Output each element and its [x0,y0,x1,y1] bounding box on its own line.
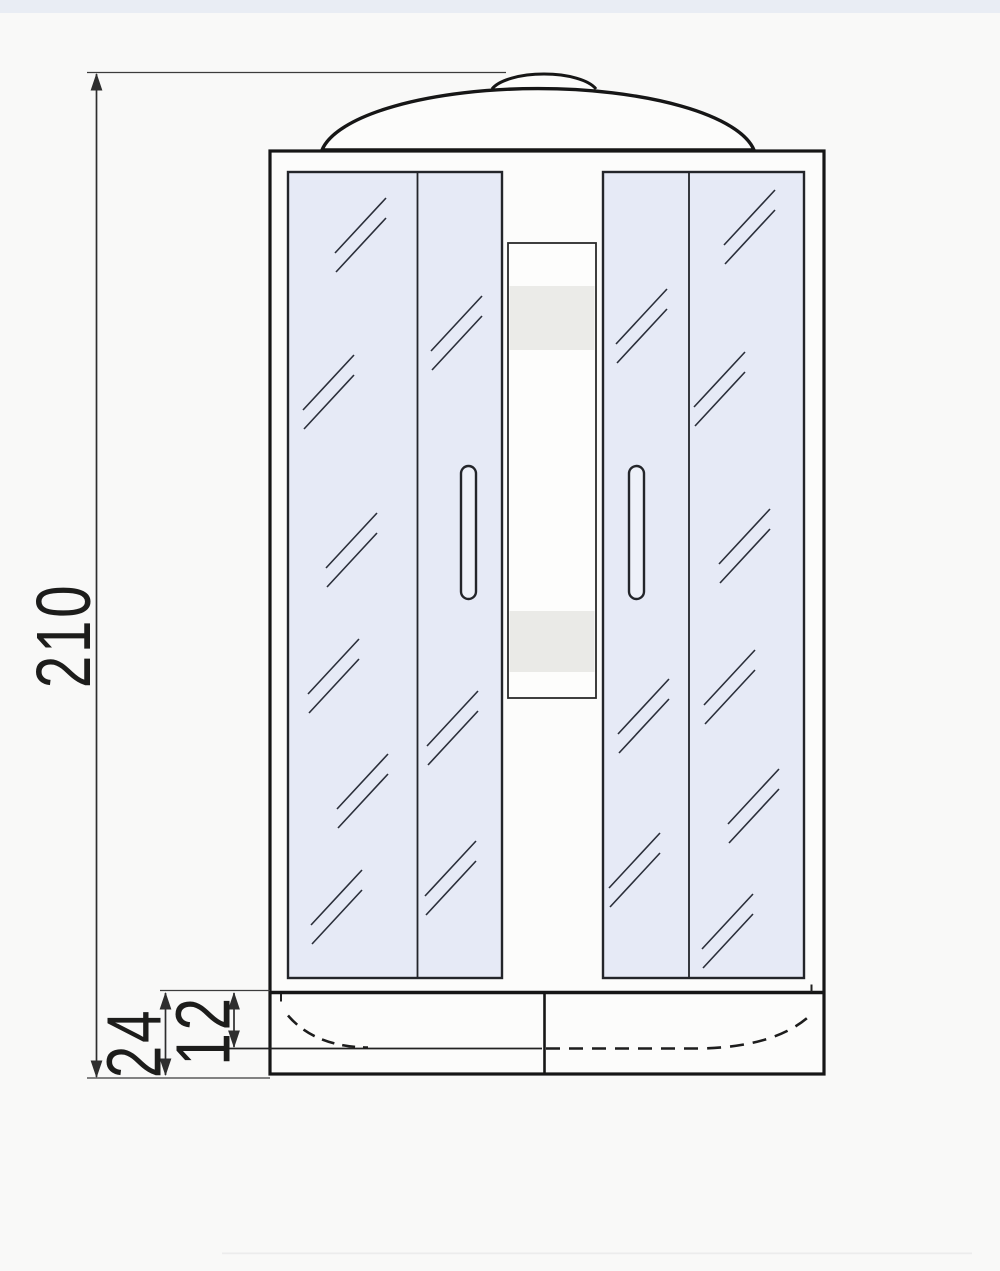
svg-text:12: 12 [161,995,247,1065]
svg-text:210: 210 [21,583,107,689]
